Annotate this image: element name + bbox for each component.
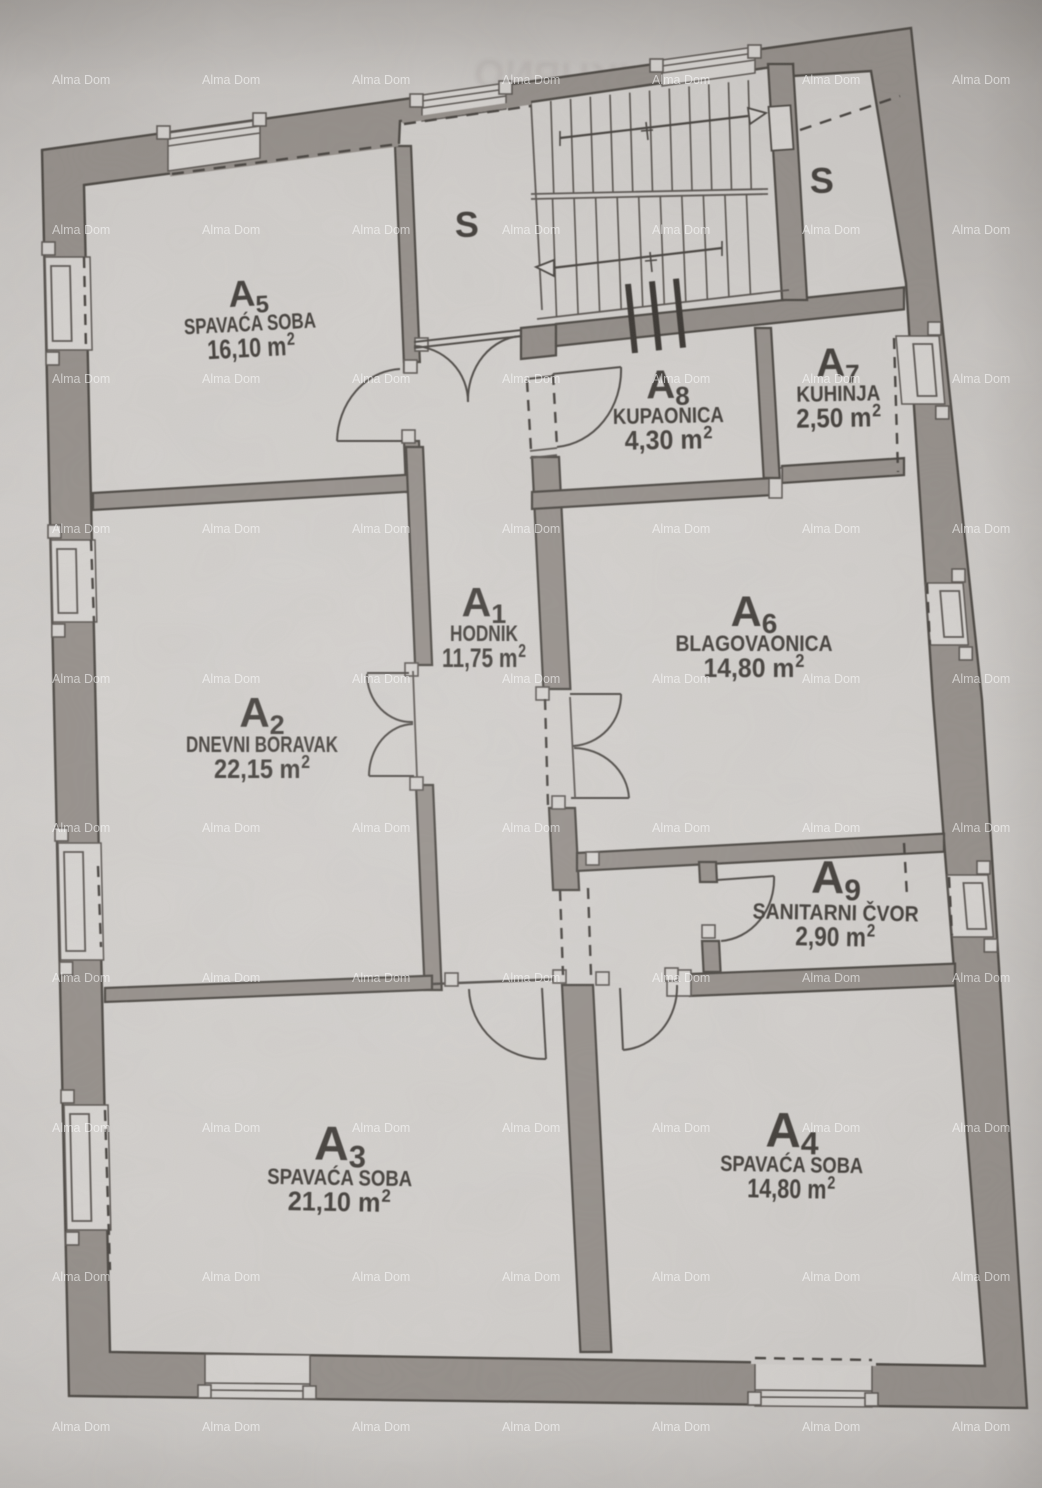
svg-text:Alma Dom: Alma Dom bbox=[352, 1121, 410, 1135]
svg-text:Alma Dom: Alma Dom bbox=[52, 223, 110, 237]
svg-text:Alma Dom: Alma Dom bbox=[502, 223, 560, 237]
svg-text:Alma Dom: Alma Dom bbox=[202, 73, 260, 87]
svg-text:Alma Dom: Alma Dom bbox=[202, 971, 260, 985]
svg-text:Alma Dom: Alma Dom bbox=[352, 522, 410, 536]
svg-text:Alma Dom: Alma Dom bbox=[502, 1121, 560, 1135]
svg-text:Alma Dom: Alma Dom bbox=[802, 1270, 860, 1284]
svg-text:Alma Dom: Alma Dom bbox=[52, 821, 110, 835]
svg-text:Alma Dom: Alma Dom bbox=[652, 522, 710, 536]
svg-text:Alma Dom: Alma Dom bbox=[652, 672, 710, 686]
svg-text:Alma Dom: Alma Dom bbox=[352, 223, 410, 237]
svg-text:Alma Dom: Alma Dom bbox=[352, 672, 410, 686]
svg-text:Alma Dom: Alma Dom bbox=[802, 821, 860, 835]
svg-text:Alma Dom: Alma Dom bbox=[802, 372, 860, 386]
svg-text:Alma Dom: Alma Dom bbox=[652, 372, 710, 386]
svg-text:Alma Dom: Alma Dom bbox=[652, 73, 710, 87]
svg-text:Alma Dom: Alma Dom bbox=[52, 372, 110, 386]
svg-text:Alma Dom: Alma Dom bbox=[802, 223, 860, 237]
svg-text:Alma Dom: Alma Dom bbox=[52, 971, 110, 985]
svg-text:Alma Dom: Alma Dom bbox=[502, 971, 560, 985]
svg-text:Alma Dom: Alma Dom bbox=[952, 1420, 1010, 1434]
svg-text:Alma Dom: Alma Dom bbox=[952, 223, 1010, 237]
svg-text:Alma Dom: Alma Dom bbox=[52, 1420, 110, 1434]
svg-text:Alma Dom: Alma Dom bbox=[952, 1121, 1010, 1135]
svg-text:Alma Dom: Alma Dom bbox=[52, 672, 110, 686]
svg-text:Alma Dom: Alma Dom bbox=[952, 73, 1010, 87]
svg-text:Alma Dom: Alma Dom bbox=[802, 1121, 860, 1135]
svg-text:Alma Dom: Alma Dom bbox=[52, 1270, 110, 1284]
svg-text:Alma Dom: Alma Dom bbox=[502, 1270, 560, 1284]
svg-text:Alma Dom: Alma Dom bbox=[202, 372, 260, 386]
svg-text:Alma Dom: Alma Dom bbox=[502, 522, 560, 536]
svg-text:Alma Dom: Alma Dom bbox=[802, 971, 860, 985]
svg-text:Alma Dom: Alma Dom bbox=[952, 372, 1010, 386]
svg-text:Alma Dom: Alma Dom bbox=[952, 522, 1010, 536]
svg-text:Alma Dom: Alma Dom bbox=[202, 223, 260, 237]
svg-text:Alma Dom: Alma Dom bbox=[802, 1420, 860, 1434]
svg-text:Alma Dom: Alma Dom bbox=[652, 1121, 710, 1135]
svg-text:Alma Dom: Alma Dom bbox=[802, 672, 860, 686]
svg-text:Alma Dom: Alma Dom bbox=[652, 821, 710, 835]
svg-text:Alma Dom: Alma Dom bbox=[52, 73, 110, 87]
svg-text:Alma Dom: Alma Dom bbox=[502, 672, 560, 686]
svg-text:Alma Dom: Alma Dom bbox=[352, 1420, 410, 1434]
svg-text:Alma Dom: Alma Dom bbox=[652, 971, 710, 985]
svg-text:Alma Dom: Alma Dom bbox=[502, 1420, 560, 1434]
svg-text:Alma Dom: Alma Dom bbox=[202, 1270, 260, 1284]
svg-text:Alma Dom: Alma Dom bbox=[502, 821, 560, 835]
svg-text:Alma Dom: Alma Dom bbox=[802, 73, 860, 87]
svg-text:Alma Dom: Alma Dom bbox=[202, 672, 260, 686]
svg-text:Alma Dom: Alma Dom bbox=[952, 1270, 1010, 1284]
svg-text:Alma Dom: Alma Dom bbox=[352, 971, 410, 985]
svg-text:Alma Dom: Alma Dom bbox=[352, 1270, 410, 1284]
svg-text:Alma Dom: Alma Dom bbox=[952, 672, 1010, 686]
svg-text:Alma Dom: Alma Dom bbox=[352, 73, 410, 87]
svg-text:Alma Dom: Alma Dom bbox=[202, 522, 260, 536]
svg-text:Alma Dom: Alma Dom bbox=[52, 522, 110, 536]
svg-text:Alma Dom: Alma Dom bbox=[652, 1270, 710, 1284]
svg-text:Alma Dom: Alma Dom bbox=[952, 821, 1010, 835]
svg-text:Alma Dom: Alma Dom bbox=[802, 522, 860, 536]
svg-text:Alma Dom: Alma Dom bbox=[502, 73, 560, 87]
svg-text:Alma Dom: Alma Dom bbox=[202, 1121, 260, 1135]
svg-text:Alma Dom: Alma Dom bbox=[52, 1121, 110, 1135]
svg-text:Alma Dom: Alma Dom bbox=[652, 223, 710, 237]
svg-text:Alma Dom: Alma Dom bbox=[502, 372, 560, 386]
svg-text:Alma Dom: Alma Dom bbox=[202, 1420, 260, 1434]
svg-text:Alma Dom: Alma Dom bbox=[652, 1420, 710, 1434]
svg-text:Alma Dom: Alma Dom bbox=[352, 821, 410, 835]
svg-text:Alma Dom: Alma Dom bbox=[952, 971, 1010, 985]
svg-text:Alma Dom: Alma Dom bbox=[202, 821, 260, 835]
svg-text:Alma Dom: Alma Dom bbox=[352, 372, 410, 386]
